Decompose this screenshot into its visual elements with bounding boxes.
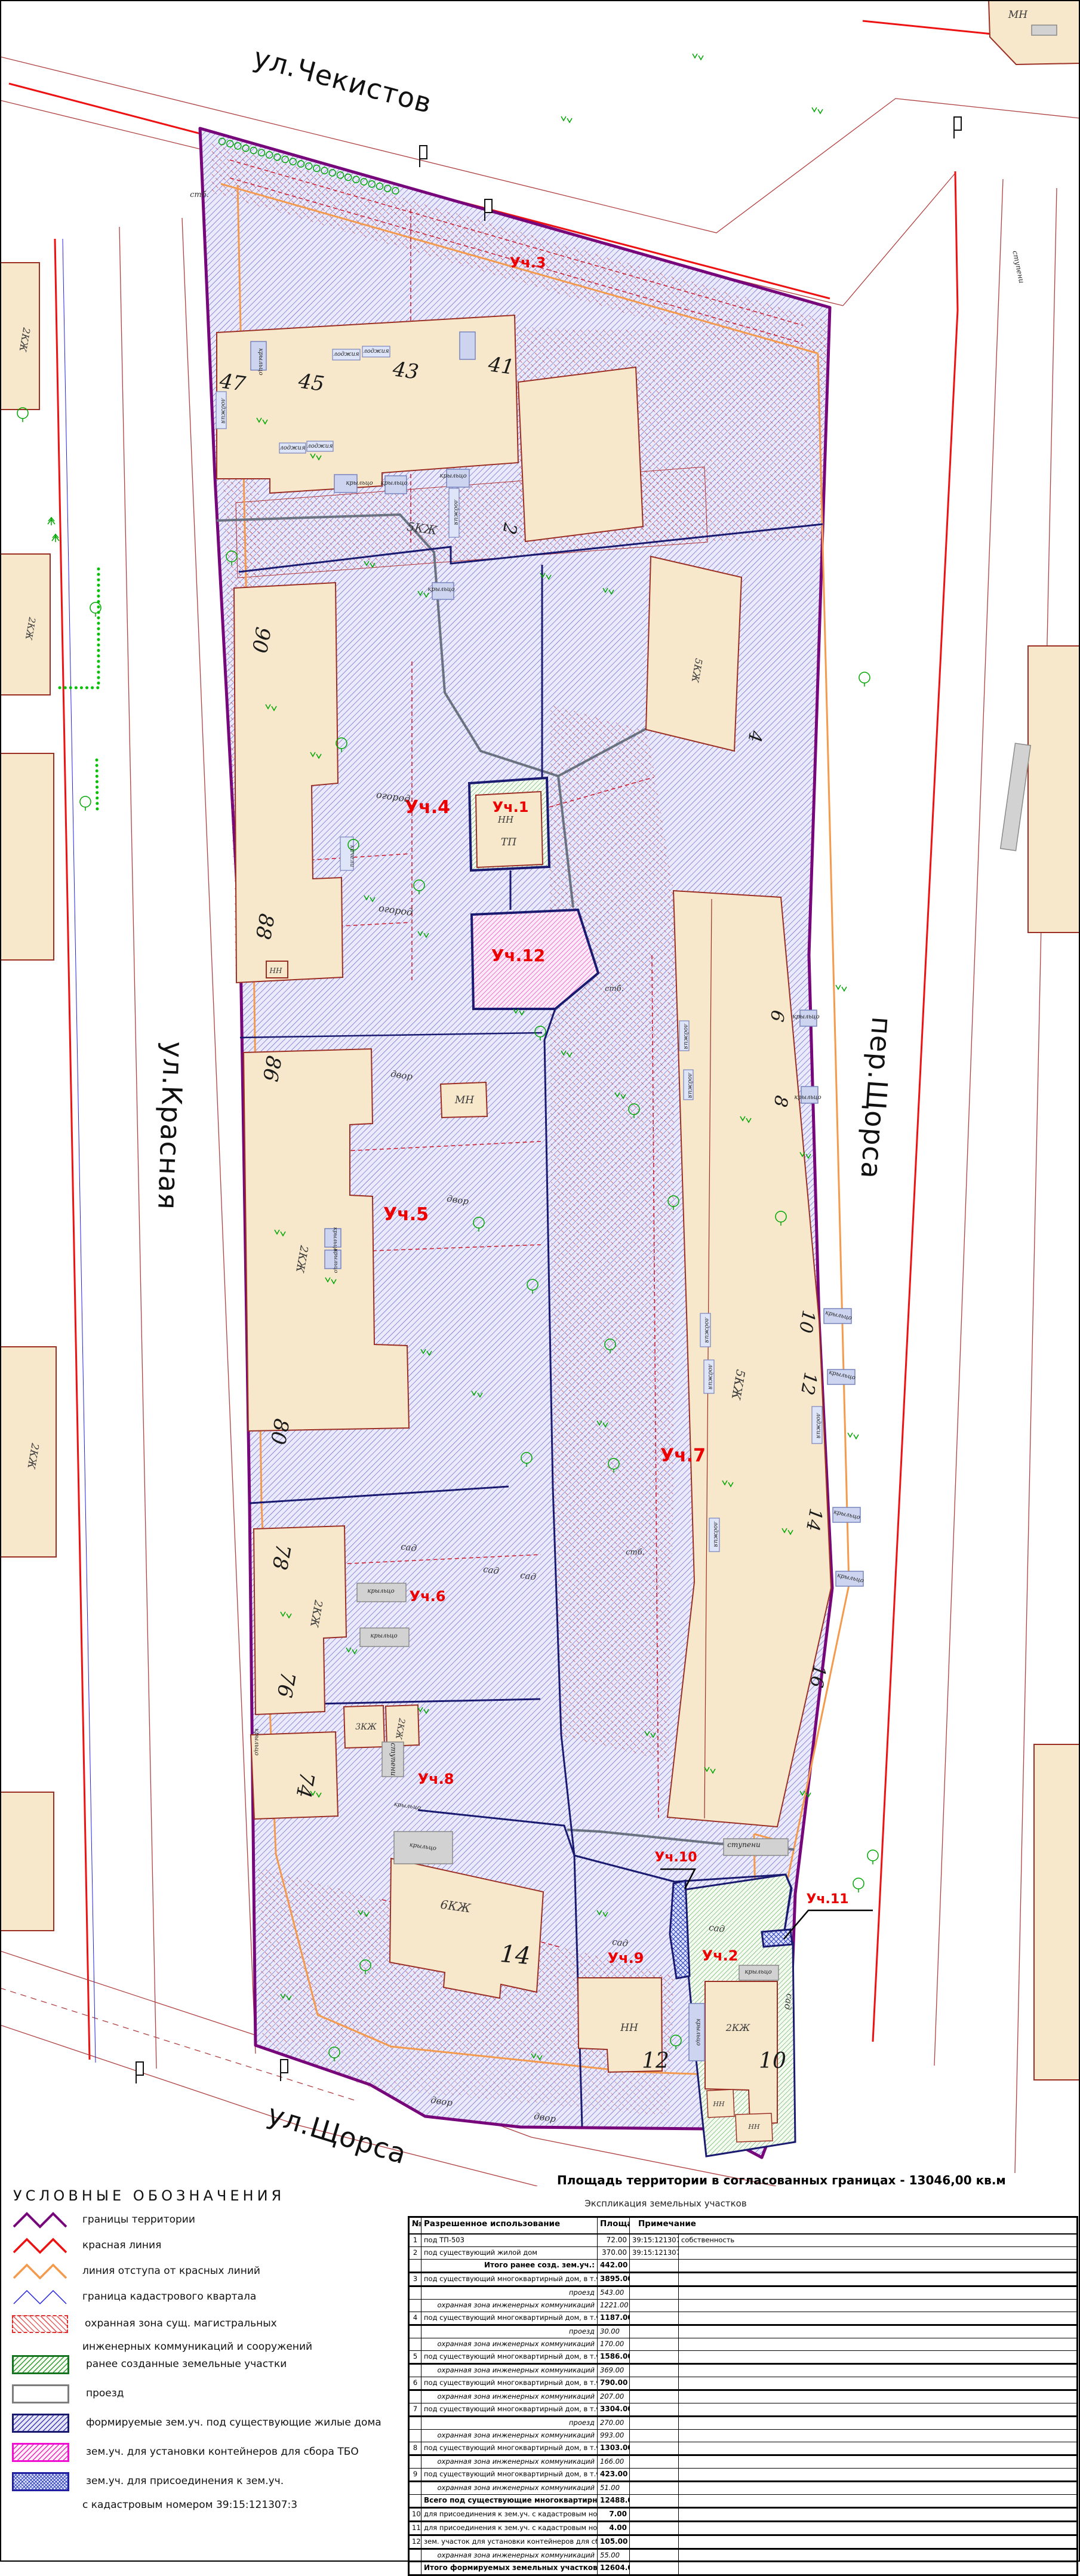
parcel-uch1: Уч.1 bbox=[493, 799, 529, 815]
table-row-9: 9под существующий многоквартирный дом, в… bbox=[410, 2469, 1076, 2482]
note-stupeni-1: ступени bbox=[727, 1841, 761, 1849]
table-row-sub-15: охранная зона инженерных коммуникаций993… bbox=[410, 2430, 1076, 2442]
c-note2 bbox=[679, 2536, 1076, 2548]
note-kryltso-16: крыльцо bbox=[367, 1588, 394, 1595]
house-47: 47 bbox=[217, 369, 247, 396]
tree-icon bbox=[80, 796, 91, 811]
note-sad-1: сад bbox=[400, 1541, 417, 1554]
c-area: 207.00 bbox=[598, 2391, 630, 2403]
note-lodzhiya-9: лоджия bbox=[703, 1317, 710, 1343]
bldg-2kzh-uch2: 2КЖ bbox=[725, 2022, 751, 2033]
table-row-11: 11для присоединения к зем.уч. с кадастро… bbox=[410, 2522, 1076, 2536]
c-note2 bbox=[679, 2550, 1076, 2562]
c-note2 bbox=[679, 2377, 1076, 2389]
c-area: 1187.00 bbox=[598, 2312, 630, 2324]
c-area: 12488.00 bbox=[598, 2495, 630, 2507]
note-lodzhiya-2: лоджия bbox=[363, 348, 389, 355]
zigzag-red-icon bbox=[12, 2236, 69, 2256]
c-note1 bbox=[630, 2312, 679, 2324]
note-kryltso-15: крыльцо bbox=[253, 1728, 260, 1755]
c-num: 6 bbox=[410, 2377, 421, 2389]
c-area: 1303.00 bbox=[598, 2442, 630, 2454]
c-note1 bbox=[630, 2482, 679, 2494]
legend-label: охранная зона сущ. магистральных bbox=[85, 2318, 277, 2330]
c-area: 105.00 bbox=[598, 2536, 630, 2548]
house-43: 43 bbox=[390, 357, 420, 384]
c-note1 bbox=[630, 2430, 679, 2442]
c-note2 bbox=[679, 2260, 1076, 2272]
bldg-74 bbox=[251, 1732, 338, 1819]
c-note2 bbox=[679, 2442, 1076, 2454]
c-note2 bbox=[679, 2273, 1076, 2285]
bldg-nn-uch4: НН bbox=[269, 967, 282, 975]
c-use: Итого ранее созд. зем.уч.: bbox=[421, 2260, 598, 2272]
c-num bbox=[410, 2365, 421, 2377]
c-area: 12604.00 bbox=[598, 2562, 630, 2574]
bldg-chain bbox=[646, 556, 741, 751]
table-row-4: 4под существующий многоквартирный дом, в… bbox=[410, 2312, 1076, 2326]
c-note2 bbox=[679, 2312, 1076, 2324]
table-row-7: 7под существующий многоквартирный дом, в… bbox=[410, 2403, 1076, 2417]
house-80: 80 bbox=[265, 1417, 293, 1447]
bldg-3kzh-uch8: 3КЖ bbox=[355, 1722, 377, 1732]
c-use: под существующий многоквартирный дом, в … bbox=[421, 2442, 598, 2454]
legend-label: формируемые зем.уч. под существующие жил… bbox=[86, 2417, 381, 2429]
c-use: охранная зона инженерных коммуникаций bbox=[421, 2300, 598, 2312]
c-use: зем. участок для установки контейнеров д… bbox=[421, 2536, 598, 2548]
c-note2 bbox=[679, 2287, 1076, 2299]
c-use: проезд bbox=[421, 2417, 598, 2429]
c-note1 bbox=[630, 2273, 679, 2285]
c-area: 55.00 bbox=[598, 2550, 630, 2562]
c-note1 bbox=[630, 2442, 679, 2454]
house-16r: 16 bbox=[805, 1663, 830, 1689]
c-use: под существующий многоквартирный дом, в … bbox=[421, 2273, 598, 2285]
note-kryltso-14: крыльцо bbox=[695, 2018, 701, 2045]
c-note1 bbox=[630, 2287, 679, 2299]
note-kryltso-1: крыльцо bbox=[257, 348, 264, 375]
c-use: охранная зона инженерных коммуникаций bbox=[421, 2550, 598, 2562]
pole-icon bbox=[954, 117, 961, 139]
legend-label: границы территории bbox=[82, 2214, 195, 2226]
note-lodzhiya-1: лоджия bbox=[333, 351, 359, 358]
c-note1 bbox=[630, 2417, 679, 2429]
pole-icon bbox=[281, 2060, 288, 2081]
col-header-use: Разрешенное использование bbox=[421, 2218, 598, 2233]
tree-icon bbox=[90, 602, 101, 617]
parcel-uch12: Уч.12 bbox=[491, 946, 545, 965]
c-note1 bbox=[630, 2326, 679, 2338]
c-num bbox=[410, 2287, 421, 2299]
bldg-nn-uch2a: НН bbox=[712, 2100, 725, 2108]
note-stb-1: стб. bbox=[190, 190, 209, 199]
legend-label: проезд bbox=[86, 2387, 124, 2400]
c-num bbox=[410, 2482, 421, 2494]
bldg-west-5 bbox=[0, 1792, 54, 1931]
box-blue-cross-icon bbox=[12, 2472, 69, 2491]
c-num: 10 bbox=[410, 2509, 421, 2520]
territory-area-title: Площадь территории в согласованных грани… bbox=[557, 2173, 1006, 2187]
c-note2 bbox=[679, 2495, 1076, 2507]
note-lodzhiya-10: лоджия bbox=[707, 1364, 713, 1389]
c-use: охранная зона инженерных коммуникаций bbox=[421, 2456, 598, 2468]
table-row-sub-8: охранная зона инженерных коммуникаций170… bbox=[410, 2338, 1076, 2351]
grass-icon bbox=[561, 116, 572, 122]
house-14r: 14 bbox=[802, 1507, 826, 1533]
note-sad-4: сад bbox=[611, 1936, 629, 1949]
c-use: под ТП-503 bbox=[421, 2235, 598, 2246]
c-area: 1586.00 bbox=[598, 2351, 630, 2363]
c-area: 790.00 bbox=[598, 2377, 630, 2389]
c-use: для присоединения к зем.уч. с кадастровы… bbox=[421, 2522, 598, 2534]
c-use: охранная зона инженерных коммуникаций bbox=[421, 2430, 598, 2442]
c-num: 1 bbox=[410, 2235, 421, 2246]
c-area: 442.00 bbox=[598, 2260, 630, 2272]
legend-heading: УСЛОВНЫЕ ОБОЗНАЧЕНИЯ bbox=[13, 2187, 403, 2204]
bldg-west-2 bbox=[0, 554, 50, 695]
c-note1 bbox=[630, 2351, 679, 2363]
house-78: 78 bbox=[267, 1542, 295, 1572]
box-red-hatch-icon bbox=[12, 2315, 68, 2333]
legend-label: линия отступа от красных линий bbox=[82, 2265, 260, 2278]
bldg-tp: ТП bbox=[501, 836, 517, 848]
c-note2 bbox=[679, 2338, 1076, 2350]
c-num bbox=[410, 2300, 421, 2312]
c-use: охранная зона инженерных коммуникаций bbox=[421, 2365, 598, 2377]
c-area: 72.00 bbox=[598, 2235, 630, 2246]
c-note2 bbox=[679, 2417, 1076, 2429]
parcel-uch3: Уч.3 bbox=[510, 254, 546, 271]
house-12b: 12 bbox=[642, 2049, 669, 2073]
c-use: под существующий многоквартирный дом, в … bbox=[421, 2469, 598, 2480]
grass-icon bbox=[836, 985, 847, 991]
legend-item-box-red-hatch: охранная зона сущ. магистральных bbox=[12, 2313, 403, 2335]
c-area: 4.00 bbox=[598, 2522, 630, 2534]
table-row-12: 12зем. участок для установки контейнеров… bbox=[410, 2536, 1076, 2550]
house-41: 41 bbox=[486, 352, 515, 380]
note-stb-3: стб. bbox=[605, 984, 624, 993]
c-area: 1221.00 bbox=[598, 2300, 630, 2312]
c-note2 bbox=[679, 2300, 1076, 2312]
c-note1: 39:15:121307:2 bbox=[630, 2235, 679, 2246]
c-note1 bbox=[630, 2550, 679, 2562]
c-use: проезд bbox=[421, 2287, 598, 2299]
c-note2 bbox=[679, 2391, 1076, 2403]
c-use: охранная зона инженерных коммуникаций bbox=[421, 2391, 598, 2403]
c-area: 543.00 bbox=[598, 2287, 630, 2299]
c-note1: 39:15:121307:3 bbox=[630, 2247, 679, 2259]
table-row-2: 2под существующий жилой дом370.0039:15:1… bbox=[410, 2247, 1076, 2260]
note-stb-2: стб. bbox=[626, 1548, 645, 1557]
tree-icon bbox=[853, 1878, 864, 1892]
street-schorsa: ул.Щорса bbox=[264, 2098, 411, 2171]
c-num bbox=[410, 2338, 421, 2350]
c-num bbox=[410, 2495, 421, 2507]
note-kryltso-20: крыльцо bbox=[333, 1249, 339, 1273]
col-header-area: Площадь, bbox=[598, 2218, 630, 2233]
legend-label: зем.уч. для установки контейнеров для сб… bbox=[86, 2446, 359, 2458]
c-note1 bbox=[630, 2509, 679, 2520]
table-row-sub-19: охранная зона инженерных коммуникаций51.… bbox=[410, 2482, 1076, 2495]
grass-icon bbox=[693, 54, 703, 60]
parcel-uch9: Уч.9 bbox=[608, 1950, 644, 1966]
c-note1 bbox=[630, 2260, 679, 2272]
c-note1 bbox=[630, 2338, 679, 2350]
note-sad-5: сад bbox=[708, 1922, 725, 1935]
box-green-hatch-icon bbox=[12, 2355, 69, 2374]
table-row-sub-5: охранная зона инженерных коммуникаций122… bbox=[410, 2300, 1076, 2312]
house-45: 45 bbox=[296, 369, 325, 396]
note-lodzhiya-7: лоджия bbox=[682, 1023, 689, 1049]
legend-label: красная линия bbox=[82, 2239, 161, 2252]
parcel-uch7: Уч.7 bbox=[660, 1445, 706, 1466]
c-use: Итого формируемых земельных участков bbox=[421, 2562, 598, 2574]
house-10b: 10 bbox=[759, 2049, 786, 2073]
table-row-total-20: Всего под существующие многоквартирные д… bbox=[410, 2495, 1076, 2509]
bldg-west-3 bbox=[0, 753, 54, 960]
c-num bbox=[410, 2326, 421, 2338]
note-stupeni-2: ступени bbox=[389, 1743, 398, 1776]
c-note2 bbox=[679, 2247, 1076, 2259]
note-lodzhiya-5: лоджия bbox=[220, 398, 226, 423]
parcel-uch11-area bbox=[762, 1929, 792, 1947]
c-use: для присоединения к зем.уч. с кадастровы… bbox=[421, 2509, 598, 2520]
bldg-nn-uch2b: НН bbox=[747, 2123, 760, 2131]
legend-label-extra: с кадастровым номером 39:15:121307:3 bbox=[82, 2499, 403, 2511]
c-note1 bbox=[630, 2300, 679, 2312]
legend-item-zigzag-orange: линия отступа от красных линий bbox=[12, 2261, 403, 2282]
c-num bbox=[410, 2562, 421, 2574]
bldg-east-1 bbox=[1028, 646, 1080, 932]
legend-item-box-blue-hatch: формируемые зем.уч. под существующие жил… bbox=[12, 2411, 403, 2435]
note-lodzhiya-8: лоджия bbox=[687, 1072, 693, 1098]
c-num: 11 bbox=[410, 2522, 421, 2534]
note-lodzhiya-12: лоджия bbox=[712, 1521, 719, 1547]
col-header-num: № bbox=[410, 2218, 421, 2233]
box-gray-icon bbox=[12, 2384, 69, 2403]
bldg-mn-2: МН bbox=[1008, 9, 1028, 21]
house-10r: 10 bbox=[795, 1309, 819, 1335]
street-krasnaya: ул.Красная bbox=[152, 1041, 190, 1210]
c-area: 369.00 bbox=[598, 2365, 630, 2377]
house-74: 74 bbox=[291, 1770, 319, 1800]
table-row-3: 3под существующий многоквартирный дом, в… bbox=[410, 2273, 1076, 2287]
note-kryltso-3: крыльцо bbox=[380, 480, 407, 487]
street-chekistov: ул.Чекистов bbox=[250, 41, 436, 120]
c-area: 423.00 bbox=[598, 2469, 630, 2480]
c-note1 bbox=[630, 2562, 679, 2574]
c-note2 bbox=[679, 2469, 1076, 2480]
c-use: под существующий многоквартирный дом, в … bbox=[421, 2377, 598, 2389]
note-kryltso-6: крыльцо bbox=[792, 1014, 819, 1020]
c-note2: собственность bbox=[679, 2235, 1076, 2246]
note-lodzhiya-4: лоджия bbox=[307, 443, 333, 450]
legend-item-box-gray: проезд bbox=[12, 2382, 403, 2406]
bldg-mn-1: МН bbox=[454, 1094, 475, 1106]
legend: УСЛОВНЫЕ ОБОЗНАЧЕНИЯ границы территориик… bbox=[12, 2187, 403, 2511]
parcel-uch4: Уч.4 bbox=[405, 797, 450, 818]
c-num: 8 bbox=[410, 2442, 421, 2454]
house-90: 90 bbox=[247, 625, 275, 655]
c-use: Всего под существующие многоквартирные д… bbox=[421, 2495, 598, 2507]
c-num bbox=[410, 2456, 421, 2468]
c-num: 7 bbox=[410, 2403, 421, 2415]
hedge-dots bbox=[97, 760, 97, 812]
c-num: 9 bbox=[410, 2469, 421, 2480]
table-row-8: 8под существующий многоквартирный дом, в… bbox=[410, 2442, 1076, 2456]
pole-icon bbox=[136, 2062, 143, 2083]
legend-label: граница кадастрового квартала bbox=[82, 2291, 256, 2303]
legend-item-zigzag-blue: граница кадастрового квартала bbox=[12, 2287, 403, 2307]
tree-icon bbox=[859, 672, 870, 687]
parcel-uch2: Уч.2 bbox=[702, 1947, 739, 1964]
street-per-schorsa: пер.Щорса bbox=[855, 1015, 899, 1180]
note-lodzhiya-3: лоджия bbox=[279, 445, 305, 451]
table-row-total-25: Итого формируемых земельных участков1260… bbox=[410, 2562, 1076, 2574]
c-use: охранная зона инженерных коммуникаций bbox=[421, 2482, 598, 2494]
c-area: 3304.00 bbox=[598, 2403, 630, 2415]
c-note2 bbox=[679, 2522, 1076, 2534]
table-row-total-2: Итого ранее созд. зем.уч.:442.00 bbox=[410, 2260, 1076, 2273]
red-line-krasnaya bbox=[55, 239, 90, 2060]
table-subtitle: Экспликация земельных участков bbox=[555, 2198, 776, 2209]
house-86: 86 bbox=[257, 1054, 285, 1084]
note-kryltso-17: крыльцо bbox=[370, 1633, 397, 1639]
note-kryltso-13: крыльцо bbox=[744, 1969, 771, 1975]
c-note1 bbox=[630, 2495, 679, 2507]
c-note1 bbox=[630, 2377, 679, 2389]
c-note2 bbox=[679, 2365, 1076, 2377]
c-area: 3895.00 bbox=[598, 2273, 630, 2285]
c-note1 bbox=[630, 2391, 679, 2403]
c-note1 bbox=[630, 2536, 679, 2548]
c-num bbox=[410, 2417, 421, 2429]
c-area: 270.00 bbox=[598, 2417, 630, 2429]
box-magenta-hatch-icon bbox=[12, 2443, 69, 2462]
table-row-sub-24: охранная зона инженерных коммуникаций55.… bbox=[410, 2550, 1076, 2562]
c-area: 166.00 bbox=[598, 2456, 630, 2468]
house-14b: 14 bbox=[499, 1940, 532, 1970]
c-num bbox=[410, 2260, 421, 2272]
parcel-uch5: Уч.5 bbox=[383, 1204, 429, 1225]
c-use: под существующий многоквартирный дом, в … bbox=[421, 2312, 598, 2324]
house-76: 76 bbox=[272, 1670, 300, 1700]
legend-item-zigzag-purple: границы территории bbox=[12, 2210, 403, 2230]
c-note1 bbox=[630, 2469, 679, 2480]
box-blue-hatch-icon bbox=[12, 2414, 69, 2433]
parcel-uch8: Уч.8 bbox=[418, 1771, 454, 1787]
legend-item-zigzag-red: красная линия bbox=[12, 2236, 403, 2256]
c-num: 12 bbox=[410, 2536, 421, 2548]
parcel-uch10: Уч.10 bbox=[654, 1850, 697, 1865]
legend-label: зем.уч. для присоединения к зем.уч. bbox=[86, 2475, 284, 2488]
spruce-icon bbox=[52, 534, 59, 542]
c-note2 bbox=[679, 2403, 1076, 2415]
c-use: охранная зона инженерных коммуникаций bbox=[421, 2338, 598, 2350]
parcel-uch11: Уч.11 bbox=[806, 1892, 848, 1907]
table-row-6: 6под существующий многоквартирный дом, в… bbox=[410, 2377, 1076, 2391]
c-area: 51.00 bbox=[598, 2482, 630, 2494]
c-num bbox=[410, 2430, 421, 2442]
c-note2 bbox=[679, 2482, 1076, 2494]
c-area: 7.00 bbox=[598, 2509, 630, 2520]
note-kryltso-5: крыльцо bbox=[427, 586, 454, 593]
bldg-east-2 bbox=[1034, 1744, 1080, 2080]
zigzag-orange-icon bbox=[12, 2261, 69, 2282]
c-note2 bbox=[679, 2430, 1076, 2442]
c-area: 30.00 bbox=[598, 2326, 630, 2338]
note-lodzhiya-6: лоджия bbox=[453, 499, 459, 525]
note-lodzhiya-11: лоджия bbox=[815, 1412, 821, 1438]
c-num: 3 bbox=[410, 2273, 421, 2285]
table-row-sub-14: проезд270.00 bbox=[410, 2417, 1076, 2430]
c-use: проезд bbox=[421, 2326, 598, 2338]
legend-item-box-magenta-hatch: зем.уч. для установки контейнеров для сб… bbox=[12, 2440, 403, 2464]
col-header-note: Примечание bbox=[630, 2218, 1076, 2233]
table-header-row: № Разрешенное использование Площадь, При… bbox=[410, 2218, 1076, 2235]
c-area: 170.00 bbox=[598, 2338, 630, 2350]
c-note1 bbox=[630, 2365, 679, 2377]
tree-icon bbox=[867, 1850, 878, 1864]
pole-icon bbox=[420, 146, 427, 167]
c-num: 4 bbox=[410, 2312, 421, 2324]
c-num: 2 bbox=[410, 2247, 421, 2259]
table-row-sub-7: проезд30.00 bbox=[410, 2326, 1076, 2338]
zigzag-purple-icon bbox=[12, 2210, 69, 2230]
spruce-icon bbox=[48, 517, 55, 525]
c-num bbox=[410, 2391, 421, 2403]
table-row-sub-4: проезд543.00 bbox=[410, 2287, 1076, 2300]
note-stupeni-3: ступени bbox=[1011, 250, 1026, 284]
c-use: под существующий многоквартирный дом, в … bbox=[421, 2403, 598, 2415]
note-sad-2: сад bbox=[482, 1564, 500, 1577]
c-use: под существующий многоквартирный дом, в … bbox=[421, 2351, 598, 2363]
house-12r: 12 bbox=[796, 1371, 821, 1397]
note-sad-3: сад bbox=[519, 1569, 537, 1583]
note-kacheli: качели bbox=[349, 845, 355, 867]
legend-label: ранее созданные земельные участки bbox=[86, 2358, 287, 2371]
map-canvas: ул.Чекистовул.Краснаяпер.Щорсаул.ЩорсаУч… bbox=[0, 0, 1080, 2186]
note-kryltso-4: крыльцо bbox=[439, 473, 466, 479]
legend-item-box-blue-cross: зем.уч. для присоединения к зем.уч. bbox=[12, 2470, 403, 2494]
table-row-10: 10для присоединения к зем.уч. с кадастро… bbox=[410, 2509, 1076, 2522]
c-note2 bbox=[679, 2562, 1076, 2574]
table-row-sub-10: охранная зона инженерных коммуникаций369… bbox=[410, 2365, 1076, 2377]
c-note2 bbox=[679, 2456, 1076, 2468]
table-row-1: 1под ТП-50372.0039:15:121307:2собственно… bbox=[410, 2235, 1076, 2247]
c-area: 370.00 bbox=[598, 2247, 630, 2259]
c-note1 bbox=[630, 2456, 679, 2468]
legend-label-extra: инженерных коммуникаций и сооружений bbox=[82, 2341, 403, 2353]
c-num: 5 bbox=[410, 2351, 421, 2363]
bldg-nn-uch9: НН bbox=[620, 2022, 639, 2034]
house-88: 88 bbox=[250, 912, 278, 941]
note-kryltso-7: крыльцо bbox=[794, 1094, 821, 1101]
cadastral-line bbox=[63, 239, 96, 2063]
table-row-5: 5под существующий многоквартирный дом, в… bbox=[410, 2351, 1076, 2365]
note-kryltso-2: крыльцо bbox=[346, 480, 373, 487]
zigzag-blue-icon bbox=[12, 2287, 69, 2307]
table-row-sub-12: охранная зона инженерных коммуникаций207… bbox=[410, 2391, 1076, 2403]
bldg-top-wing bbox=[518, 367, 643, 541]
c-note1 bbox=[630, 2403, 679, 2415]
bldg-nn-uch1: НН bbox=[497, 814, 514, 825]
land-parcel-table: № Разрешенное использование Площадь, При… bbox=[408, 2216, 1078, 2576]
parcel-uch6: Уч.6 bbox=[410, 1588, 446, 1605]
c-use: под существующий жилой дом bbox=[421, 2247, 598, 2259]
legend-item-box-green-hatch: ранее созданные земельные участки bbox=[12, 2353, 403, 2377]
c-note1 bbox=[630, 2522, 679, 2534]
